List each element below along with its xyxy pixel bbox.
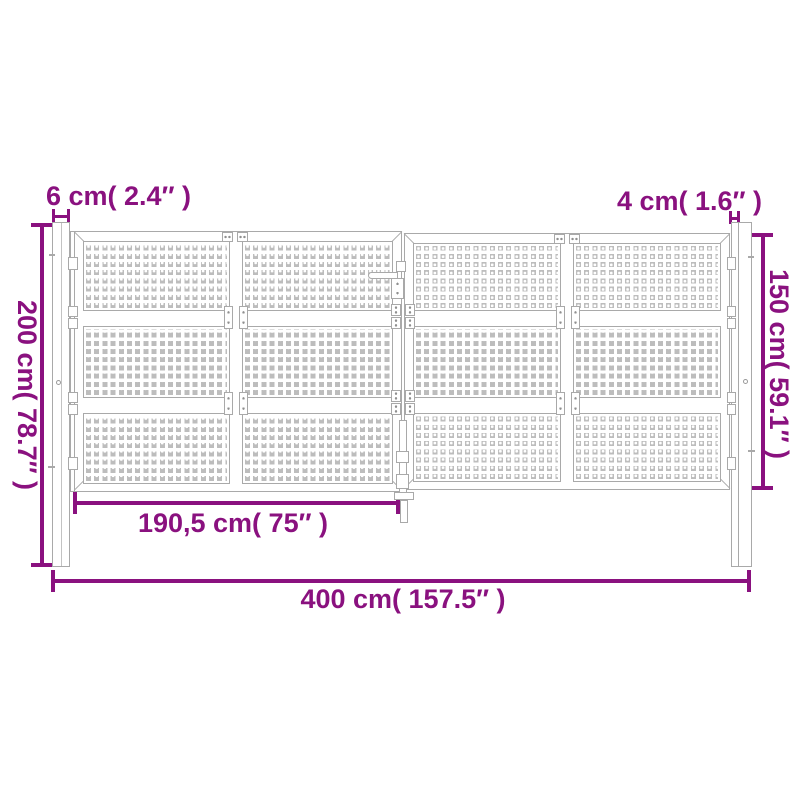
joint-plate: [571, 392, 580, 415]
dim-tick: [51, 570, 55, 592]
post-mark: [48, 466, 55, 468]
mesh-panel: [242, 413, 393, 484]
latch-plate: [405, 317, 415, 329]
joint-plate: [239, 392, 248, 415]
mesh-panel: [573, 413, 721, 482]
mesh-panel: [83, 413, 230, 484]
joint-plate: [224, 306, 233, 329]
post-screw-hole: [743, 379, 748, 384]
drop-rod-lower: [400, 500, 408, 523]
mesh-pattern: [576, 416, 718, 479]
lock-top-plate: [396, 261, 406, 272]
dim-tick: [31, 223, 52, 227]
hinge: [727, 404, 736, 415]
hinge: [727, 306, 736, 317]
joint-plate: [556, 392, 565, 415]
joint-plate: [237, 232, 248, 242]
joint-plate: [224, 392, 233, 415]
hinge: [68, 392, 78, 403]
hinge: [727, 392, 736, 403]
mesh-panel: [83, 326, 230, 398]
latch-plate: [405, 304, 415, 316]
mesh-panel: [413, 413, 561, 482]
dim-bracket-tick: [67, 209, 70, 223]
hinge: [727, 318, 736, 329]
dim-label-infill-height: 150 cm( 59.1″ ): [765, 269, 793, 459]
mesh-panel: [242, 326, 393, 398]
mesh-pattern: [576, 246, 718, 308]
dim-line-leaf-width: [75, 501, 398, 505]
post-mark: [49, 254, 55, 256]
latch-plate: [391, 304, 401, 316]
mesh-pattern: [576, 329, 718, 395]
dim-label-total-height: 200 cm( 78.7″ ): [13, 295, 41, 495]
mesh-pattern: [86, 329, 227, 395]
post-edge-line: [61, 223, 62, 566]
dim-line-total-width: [53, 579, 749, 583]
mesh-panel: [413, 243, 561, 311]
mesh-panel: [83, 241, 230, 311]
mesh-pattern: [416, 416, 558, 479]
joint-plate: [569, 234, 580, 244]
dim-tick: [751, 233, 773, 237]
post-mark: [748, 450, 755, 452]
dim-tick: [747, 570, 751, 592]
dim-tick: [31, 563, 52, 567]
hinge: [68, 257, 78, 270]
joint-plate: [222, 232, 233, 242]
mesh-panel: [573, 243, 721, 311]
mesh-panel: [573, 326, 721, 398]
post-screw-hole: [56, 380, 61, 385]
dim-label-frame-depth: 4 cm( 1.6″ ): [617, 187, 762, 215]
joint-plate: [556, 306, 565, 329]
joint-plate: [554, 234, 565, 244]
dim-tick: [751, 486, 773, 490]
mesh-pattern: [86, 244, 227, 308]
latch-plate: [405, 403, 415, 415]
latch-plate: [405, 390, 415, 402]
latch-plate: [391, 317, 401, 329]
joint-plate: [571, 306, 580, 329]
gate-dimension-diagram: 6 cm( 2.4″ ) 4 cm( 1.6″ ) 200 cm( 78.7″ …: [0, 0, 800, 800]
drop-rod-guide: [396, 451, 409, 463]
joint-plate: [239, 306, 248, 329]
latch-plate: [391, 403, 401, 415]
dim-tick: [73, 492, 77, 514]
dim-label-post-width: 6 cm( 2.4″ ): [46, 182, 191, 210]
drop-rod-foot-plate: [394, 492, 414, 500]
mesh-pattern: [416, 246, 558, 308]
gate-lock: [391, 278, 404, 299]
right-post: [738, 222, 752, 567]
hinge: [68, 457, 78, 470]
dim-label-total-width: 400 cm( 157.5″ ): [283, 585, 523, 613]
dim-label-leaf-width: 190,5 cm( 75″ ): [113, 509, 353, 537]
latch-plate: [391, 390, 401, 402]
mesh-pattern: [416, 329, 558, 395]
hinge: [68, 318, 78, 329]
hinge: [68, 306, 78, 317]
hinge: [727, 457, 736, 470]
hinge: [68, 404, 78, 415]
dim-bracket-tick: [52, 209, 55, 223]
mesh-pattern: [245, 416, 390, 481]
post-mark: [748, 256, 754, 258]
mesh-panel: [413, 326, 561, 398]
mesh-pattern: [245, 329, 390, 395]
hinge: [727, 257, 736, 270]
drop-rod-guide: [396, 474, 409, 489]
mesh-pattern: [86, 416, 227, 481]
